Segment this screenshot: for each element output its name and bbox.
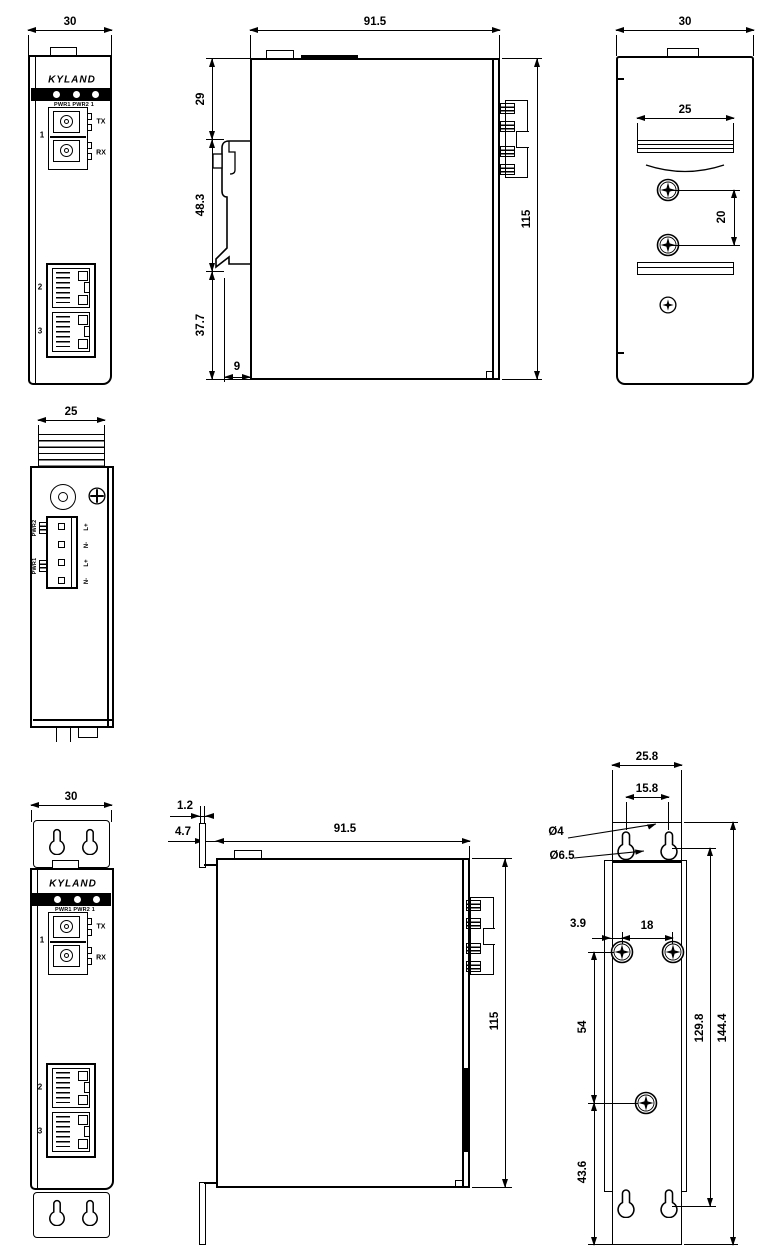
sc-fiber-core bbox=[64, 953, 69, 958]
panel-edge-line bbox=[33, 719, 112, 721]
terminal-label: L+ bbox=[84, 559, 90, 566]
terminal-label: L+ bbox=[84, 523, 90, 530]
dim-line-37-7 bbox=[212, 272, 213, 379]
dim-label-3-9: 3.9 bbox=[570, 918, 586, 930]
connector-rib bbox=[466, 943, 481, 954]
panel-edge-line bbox=[37, 870, 38, 1188]
extension-line bbox=[111, 35, 112, 55]
dim-label-115: 115 bbox=[489, 1012, 501, 1031]
led-dot bbox=[73, 91, 80, 98]
wall-mount-plate bbox=[612, 822, 682, 1245]
dim-arrow bbox=[602, 935, 611, 941]
detail-mark bbox=[455, 1180, 463, 1181]
extension-line bbox=[111, 810, 112, 822]
sc-latch-tab bbox=[87, 113, 92, 120]
sc-latch-tab bbox=[87, 947, 92, 954]
drawing-canvas: 30 KYLAND PWR1 PWR2 1 TX RX 1 2 3 91.5 bbox=[0, 0, 776, 1250]
top-rib bbox=[301, 55, 358, 58]
port-label-1: 1 bbox=[40, 936, 44, 945]
rj45-latch bbox=[84, 1082, 90, 1093]
led-dot bbox=[53, 91, 60, 98]
dim-line-depth-side-wall bbox=[216, 841, 470, 842]
rj45-latch bbox=[78, 1071, 88, 1081]
wall-plate-tab-top bbox=[199, 823, 206, 868]
din-rail-bottom bbox=[637, 262, 734, 275]
dim-label-37-7: 37.7 bbox=[195, 314, 207, 336]
dim-line-129-8 bbox=[710, 848, 711, 1206]
rj45-pins bbox=[56, 272, 70, 303]
rj45-latch bbox=[78, 295, 88, 305]
leader-line bbox=[672, 848, 716, 849]
plate-hook bbox=[204, 1182, 217, 1184]
rail-arc bbox=[643, 162, 727, 178]
dim-label-30: 30 bbox=[64, 16, 77, 28]
dim-label-25: 25 bbox=[679, 104, 692, 116]
ground-screw-icon bbox=[88, 487, 106, 505]
label-tx: TX bbox=[97, 924, 106, 931]
rail-line bbox=[638, 267, 733, 268]
extension-line bbox=[733, 123, 734, 141]
device-body-side-wall bbox=[216, 858, 470, 1188]
keyhole-slot-icon bbox=[47, 1197, 67, 1226]
connector-rib bbox=[466, 900, 481, 911]
sc-latch-tab bbox=[87, 142, 92, 149]
sc-latch-tab bbox=[87, 153, 92, 160]
panel-edge-line bbox=[35, 57, 36, 383]
extension-line bbox=[28, 35, 29, 55]
rj45-latch bbox=[78, 1095, 88, 1105]
brand-logo: KYLAND bbox=[48, 75, 96, 86]
label-rx: RX bbox=[96, 150, 106, 157]
dim-label-15-8: 15.8 bbox=[636, 783, 658, 795]
dim-line-20 bbox=[734, 190, 735, 245]
terminal-pin bbox=[58, 559, 65, 566]
dim-line-width-front-wall bbox=[31, 805, 112, 806]
label-pwr1: PWR1 bbox=[32, 558, 38, 575]
detail-mark bbox=[486, 371, 487, 380]
rj45-latch bbox=[84, 282, 90, 293]
rail-line bbox=[638, 144, 733, 145]
port-label-1: 1 bbox=[40, 131, 44, 140]
dim-label-43-6: 43.6 bbox=[577, 1161, 589, 1183]
extension-line bbox=[622, 932, 623, 944]
sc-divider bbox=[50, 941, 86, 943]
keyhole-slot-icon bbox=[658, 1186, 680, 1218]
wall-plate-tab-bottom bbox=[199, 1182, 206, 1245]
dim-line-115 bbox=[537, 59, 538, 379]
din-rail-top bbox=[637, 140, 734, 153]
terminal-screw-tab bbox=[39, 560, 47, 572]
extension-line bbox=[753, 35, 754, 56]
keyhole-slot-icon bbox=[80, 1197, 100, 1226]
dim-label-1-2: 1.2 bbox=[177, 800, 193, 812]
dim-line-18 bbox=[622, 938, 673, 939]
led-dot bbox=[54, 896, 61, 903]
connector-rib bbox=[466, 961, 481, 972]
terminal-pin bbox=[58, 523, 65, 530]
rj45-latch bbox=[78, 1115, 88, 1125]
port-label-3: 3 bbox=[38, 327, 42, 336]
top-tab bbox=[234, 850, 262, 859]
dim-line-25-top bbox=[38, 420, 105, 421]
extension-line bbox=[616, 35, 617, 56]
rj45-latch bbox=[78, 315, 88, 325]
dim-label-18: 18 bbox=[641, 920, 654, 932]
dim-line-48-3 bbox=[212, 140, 213, 271]
detail-mark bbox=[618, 78, 624, 80]
led-dot bbox=[93, 896, 100, 903]
dim-label-25: 25 bbox=[65, 406, 78, 418]
terminal-pin bbox=[58, 577, 65, 584]
sc-fiber-core bbox=[64, 119, 69, 124]
connector-stub bbox=[78, 737, 98, 738]
extension-line bbox=[637, 123, 638, 141]
extension-line bbox=[672, 932, 673, 944]
leader-line bbox=[168, 841, 216, 842]
dim-line-width-back-din bbox=[616, 30, 754, 31]
dim-label-91-5: 91.5 bbox=[334, 823, 356, 835]
extension-line bbox=[684, 822, 738, 823]
connector-step bbox=[483, 928, 495, 945]
sc-latch-tab bbox=[87, 929, 92, 936]
rj45-pins bbox=[56, 1116, 70, 1147]
terminal-screw-tab bbox=[39, 522, 47, 534]
dim-line-width-front-din bbox=[28, 30, 112, 31]
dim-arrow bbox=[205, 813, 214, 819]
connector-stub bbox=[56, 728, 57, 742]
screw-icon bbox=[659, 296, 677, 314]
keyhole-slot-icon bbox=[47, 826, 67, 855]
brand-logo: KYLAND bbox=[49, 879, 97, 890]
dim-line-54 bbox=[594, 952, 595, 1103]
leader-line bbox=[668, 245, 740, 246]
extension-line bbox=[200, 806, 201, 823]
extension-line bbox=[31, 810, 32, 822]
dim-label-115: 115 bbox=[521, 210, 533, 229]
extension-line bbox=[224, 278, 225, 382]
dim-line-43-6 bbox=[594, 1103, 595, 1245]
connector-rib bbox=[500, 121, 515, 132]
rj45-latch bbox=[84, 1126, 90, 1137]
dim-line-25-rail bbox=[637, 118, 734, 119]
port-label-2: 2 bbox=[38, 1083, 42, 1092]
keyhole-slot-icon bbox=[80, 826, 100, 855]
panel-edge-line bbox=[107, 468, 109, 726]
port-label-3: 3 bbox=[38, 1127, 42, 1136]
dim-line-144-4 bbox=[733, 822, 734, 1245]
led-dot bbox=[92, 91, 99, 98]
keyhole-slot-icon bbox=[615, 1186, 637, 1218]
connector-rib bbox=[466, 918, 481, 929]
dim-label-144-4: 144.4 bbox=[717, 1014, 729, 1043]
din-clip-top-ribs bbox=[38, 434, 105, 467]
dim-label-30: 30 bbox=[65, 791, 78, 803]
connector-stub bbox=[70, 728, 71, 742]
extension-line bbox=[250, 35, 251, 58]
dim-label-30: 30 bbox=[679, 16, 692, 28]
leader-line bbox=[672, 1206, 716, 1207]
dim-arrow bbox=[191, 813, 200, 819]
rj45-pins bbox=[56, 316, 70, 347]
extension-line bbox=[204, 806, 205, 823]
detail-mark bbox=[486, 371, 494, 372]
sc-fiber-core bbox=[64, 148, 69, 153]
dim-label-20: 20 bbox=[716, 211, 728, 224]
label-rx: RX bbox=[96, 955, 106, 962]
rail-line bbox=[638, 148, 733, 149]
terminal-pin bbox=[58, 541, 65, 548]
dim-label-9: 9 bbox=[234, 361, 240, 373]
sc-latch-tab bbox=[87, 918, 92, 925]
dim-label-129-8: 129.8 bbox=[694, 1014, 706, 1043]
rj45-latch bbox=[78, 1139, 88, 1149]
rj45-latch bbox=[78, 271, 88, 281]
dim-line-25-8 bbox=[612, 765, 682, 766]
leader-line bbox=[588, 1244, 614, 1245]
sc-latch-tab bbox=[87, 958, 92, 965]
port-label-2: 2 bbox=[38, 283, 42, 292]
device-body-side-din bbox=[250, 58, 500, 380]
screw-icon bbox=[661, 940, 685, 964]
dim-label-4-7: 4.7 bbox=[175, 826, 191, 838]
dim-line-15-8 bbox=[626, 797, 669, 798]
connector-rib bbox=[500, 164, 515, 175]
dim-line-9 bbox=[225, 377, 250, 378]
sc-latch-tab bbox=[87, 124, 92, 131]
rj45-latch bbox=[84, 326, 90, 337]
extension-line bbox=[499, 35, 500, 58]
dim-line-depth-side-din bbox=[250, 30, 500, 31]
dim-label-54: 54 bbox=[577, 1021, 589, 1034]
label-tx: TX bbox=[97, 119, 106, 126]
leader-line bbox=[668, 190, 740, 191]
label-pwr2: PWR2 bbox=[32, 520, 38, 537]
dim-line-29 bbox=[212, 59, 213, 139]
extension-line bbox=[684, 1244, 738, 1245]
connector-rib bbox=[500, 146, 515, 157]
rj45-latch bbox=[78, 339, 88, 349]
dim-label-29: 29 bbox=[195, 93, 207, 106]
dim-label-91-5: 91.5 bbox=[364, 16, 386, 28]
din-clip-icon bbox=[212, 136, 254, 276]
detail-mark bbox=[455, 1180, 456, 1188]
dim-line-115 bbox=[505, 859, 506, 1187]
side-slot-detail bbox=[464, 1068, 468, 1152]
hole-leader-lines bbox=[544, 808, 694, 868]
led-dot bbox=[74, 896, 81, 903]
sc-divider bbox=[50, 136, 86, 138]
terminal-label: N- bbox=[84, 578, 90, 584]
sc-fiber-core bbox=[64, 924, 69, 929]
rj45-pins bbox=[56, 1072, 70, 1103]
terminal-label: N- bbox=[84, 542, 90, 548]
connector-step bbox=[516, 131, 529, 148]
vent-hole-inner bbox=[58, 492, 68, 502]
panel-edge-line bbox=[492, 60, 494, 378]
top-tab bbox=[266, 50, 294, 59]
terminal-edge bbox=[71, 518, 72, 587]
detail-mark bbox=[618, 352, 624, 354]
leader-line bbox=[588, 952, 614, 953]
dim-label-48-3: 48.3 bbox=[195, 194, 207, 216]
dim-label-25-8: 25.8 bbox=[636, 751, 658, 763]
connector-rib bbox=[500, 103, 515, 114]
